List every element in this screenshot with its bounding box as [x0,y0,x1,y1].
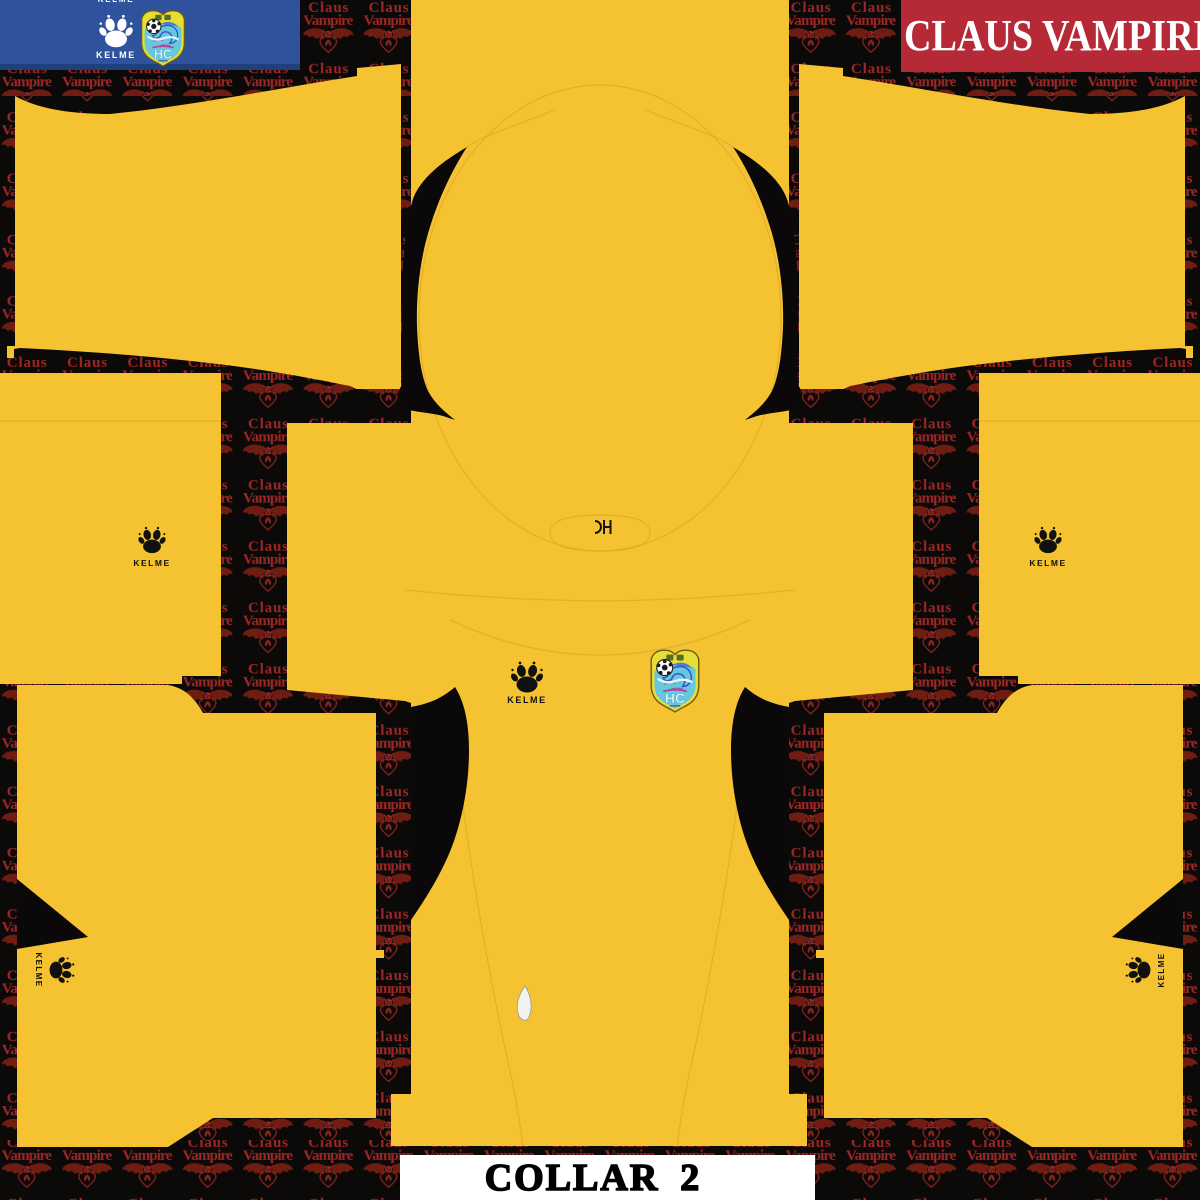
svg-text:KELME: KELME [98,0,135,4]
svg-text:KELME: KELME [34,953,43,988]
svg-text:COLLAR 2: COLLAR 2 [485,1157,702,1199]
svg-text:KELME: KELME [133,558,170,568]
svg-text:KELME: KELME [1029,558,1066,568]
svg-text:KELME: KELME [96,50,136,60]
svg-text:KELME: KELME [1157,953,1166,988]
svg-text:KELME: KELME [507,695,547,705]
svg-text:CLAUS VAMPIRE: CLAUS VAMPIRE [904,11,1200,60]
